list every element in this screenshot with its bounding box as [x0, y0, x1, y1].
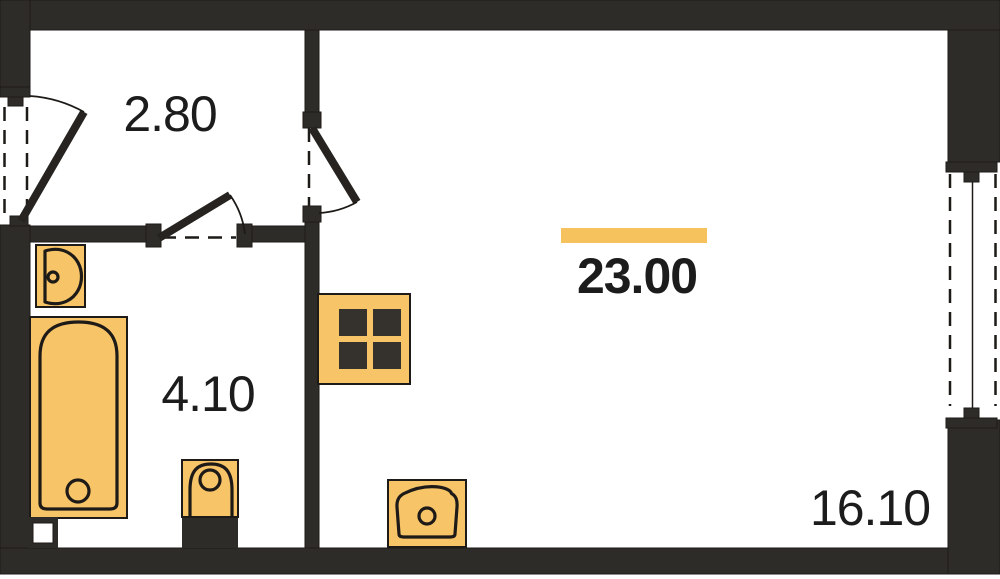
bathroom-sink-counter — [36, 245, 85, 307]
living-room-door-swing-arc — [319, 202, 357, 213]
wall-interior-horizontal-right — [251, 226, 305, 242]
entrance-door-top-stop — [8, 97, 23, 106]
ventilation-shaft — [28, 517, 58, 548]
wall-left-upper — [0, 0, 30, 97]
wall-interior-vertical-upper — [305, 30, 319, 113]
bathroom-door-leaf — [159, 195, 230, 238]
wall-bottom — [0, 548, 1000, 574]
entrance-door-leaf — [21, 112, 84, 221]
stove-burner-bottom-right — [373, 342, 401, 369]
toilet-tank — [182, 516, 238, 548]
wall-right-upper — [948, 30, 1000, 162]
kitchen-sink — [388, 480, 466, 547]
wall-interior-vertical-lower — [305, 222, 319, 548]
floor-plan: 2.80 4.10 23.00 16.10 — [0, 0, 1000, 579]
bathtub — [30, 317, 127, 518]
window-bottom-sill — [946, 418, 997, 428]
window-top-stop — [964, 172, 979, 182]
stove-burner-top-left — [339, 309, 367, 336]
hallway-area-label: 2.80 — [123, 85, 216, 143]
entrance-door-swing-arc — [30, 96, 84, 112]
living-room-door-bottom-jamb — [303, 206, 321, 222]
entrance-door-top-jamb — [0, 87, 30, 97]
living-room-door-top-jamb — [303, 112, 321, 128]
area-highlight-bar — [561, 228, 707, 243]
living-room-door-leaf — [312, 128, 357, 202]
ventilation-shaft-duct — [33, 523, 53, 543]
window-bottom-stop — [964, 408, 979, 418]
stove-burner-bottom-left — [339, 342, 367, 369]
window-top-sill — [946, 162, 997, 172]
bathroom-door — [146, 195, 252, 247]
bathroom-sink — [36, 245, 85, 307]
window — [946, 162, 997, 428]
stove-burner-top-right — [373, 309, 401, 336]
wall-right-lower — [948, 420, 1000, 574]
wall-left-lower — [0, 225, 30, 574]
entrance-door — [0, 87, 84, 226]
stove — [318, 294, 410, 384]
living-room-area-label: 16.10 — [810, 479, 930, 537]
wall-top — [0, 0, 1000, 30]
living-room-door — [303, 112, 357, 222]
wall-interior-horizontal-left — [30, 226, 147, 242]
bathroom-area-label: 4.10 — [161, 365, 254, 423]
stove-body — [318, 294, 410, 384]
bathtub-body — [30, 317, 127, 518]
toilet — [182, 460, 238, 548]
total-area-label: 23.00 — [577, 247, 697, 305]
